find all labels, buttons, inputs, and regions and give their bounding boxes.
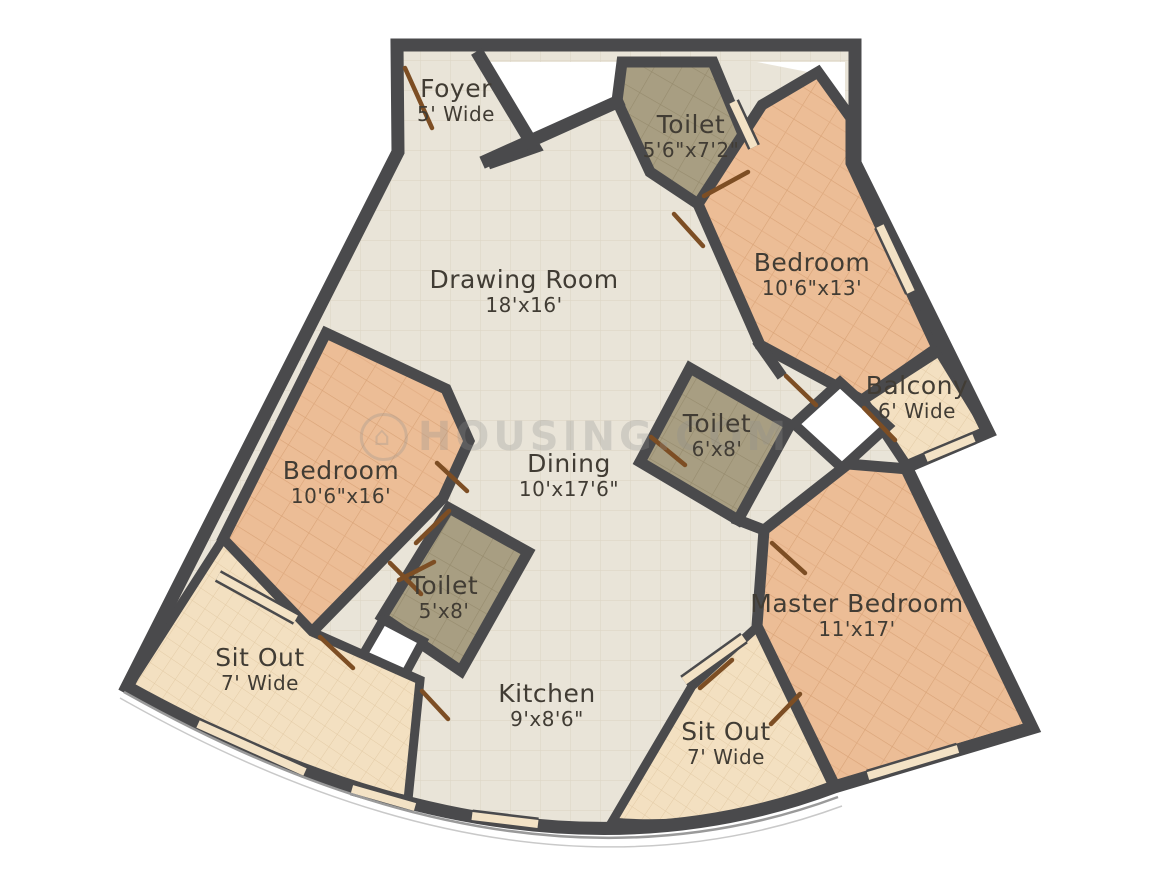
- floor-plan: ⌂ HOUSING.COM Foyer 5' Wide Toilet 5'6"x…: [0, 0, 1160, 870]
- floor-plan-svg: [0, 0, 1160, 870]
